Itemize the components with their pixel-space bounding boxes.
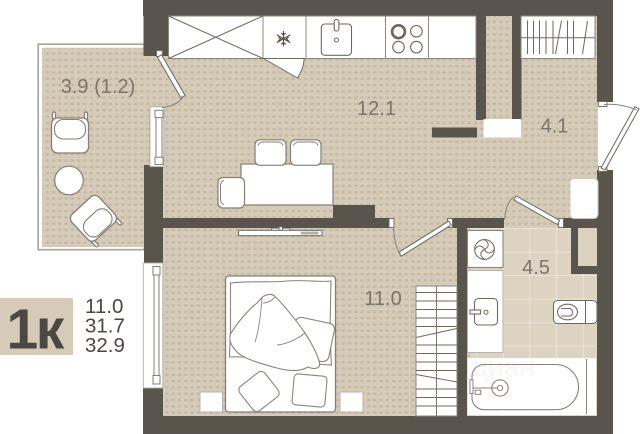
svg-text:4.5: 4.5 [522, 257, 550, 279]
svg-text:циан: циан [472, 351, 535, 382]
svg-text:32.9: 32.9 [85, 334, 125, 357]
svg-text:12.1: 12.1 [357, 98, 396, 120]
svg-text:11.0: 11.0 [364, 288, 401, 310]
svg-text:3.9 (1.2): 3.9 (1.2) [61, 76, 135, 98]
svg-text:4.1: 4.1 [541, 116, 569, 138]
svg-text:1к: 1к [7, 298, 65, 362]
